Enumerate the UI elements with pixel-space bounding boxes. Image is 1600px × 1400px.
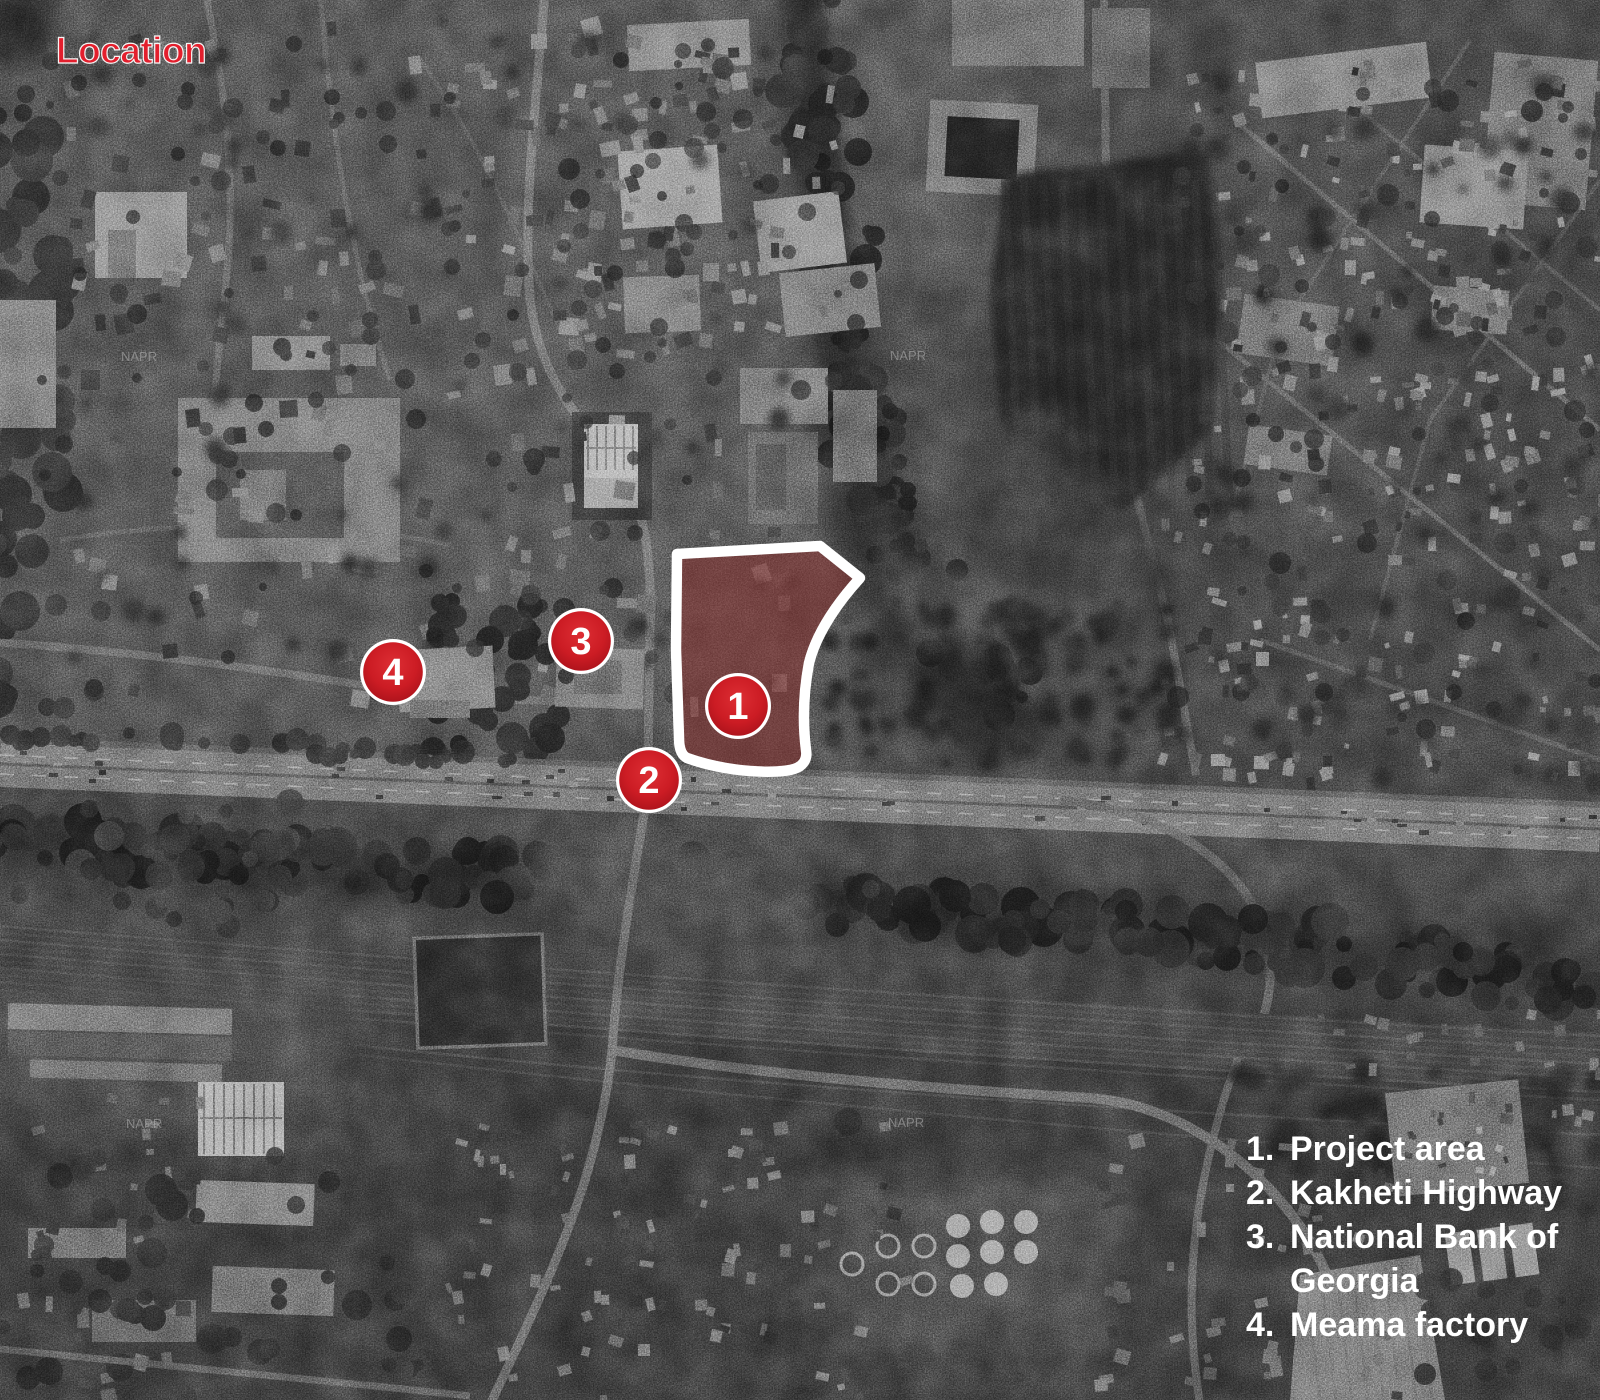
svg-text:4: 4 <box>382 652 403 694</box>
svg-text:NAPR: NAPR <box>121 349 157 364</box>
svg-text:NAPR: NAPR <box>888 1115 924 1130</box>
svg-text:3: 3 <box>570 621 591 663</box>
svg-text:NAPR: NAPR <box>890 348 926 363</box>
svg-text:NAPR: NAPR <box>126 1116 162 1131</box>
svg-text:1: 1 <box>727 686 748 728</box>
svg-text:2: 2 <box>638 760 659 802</box>
